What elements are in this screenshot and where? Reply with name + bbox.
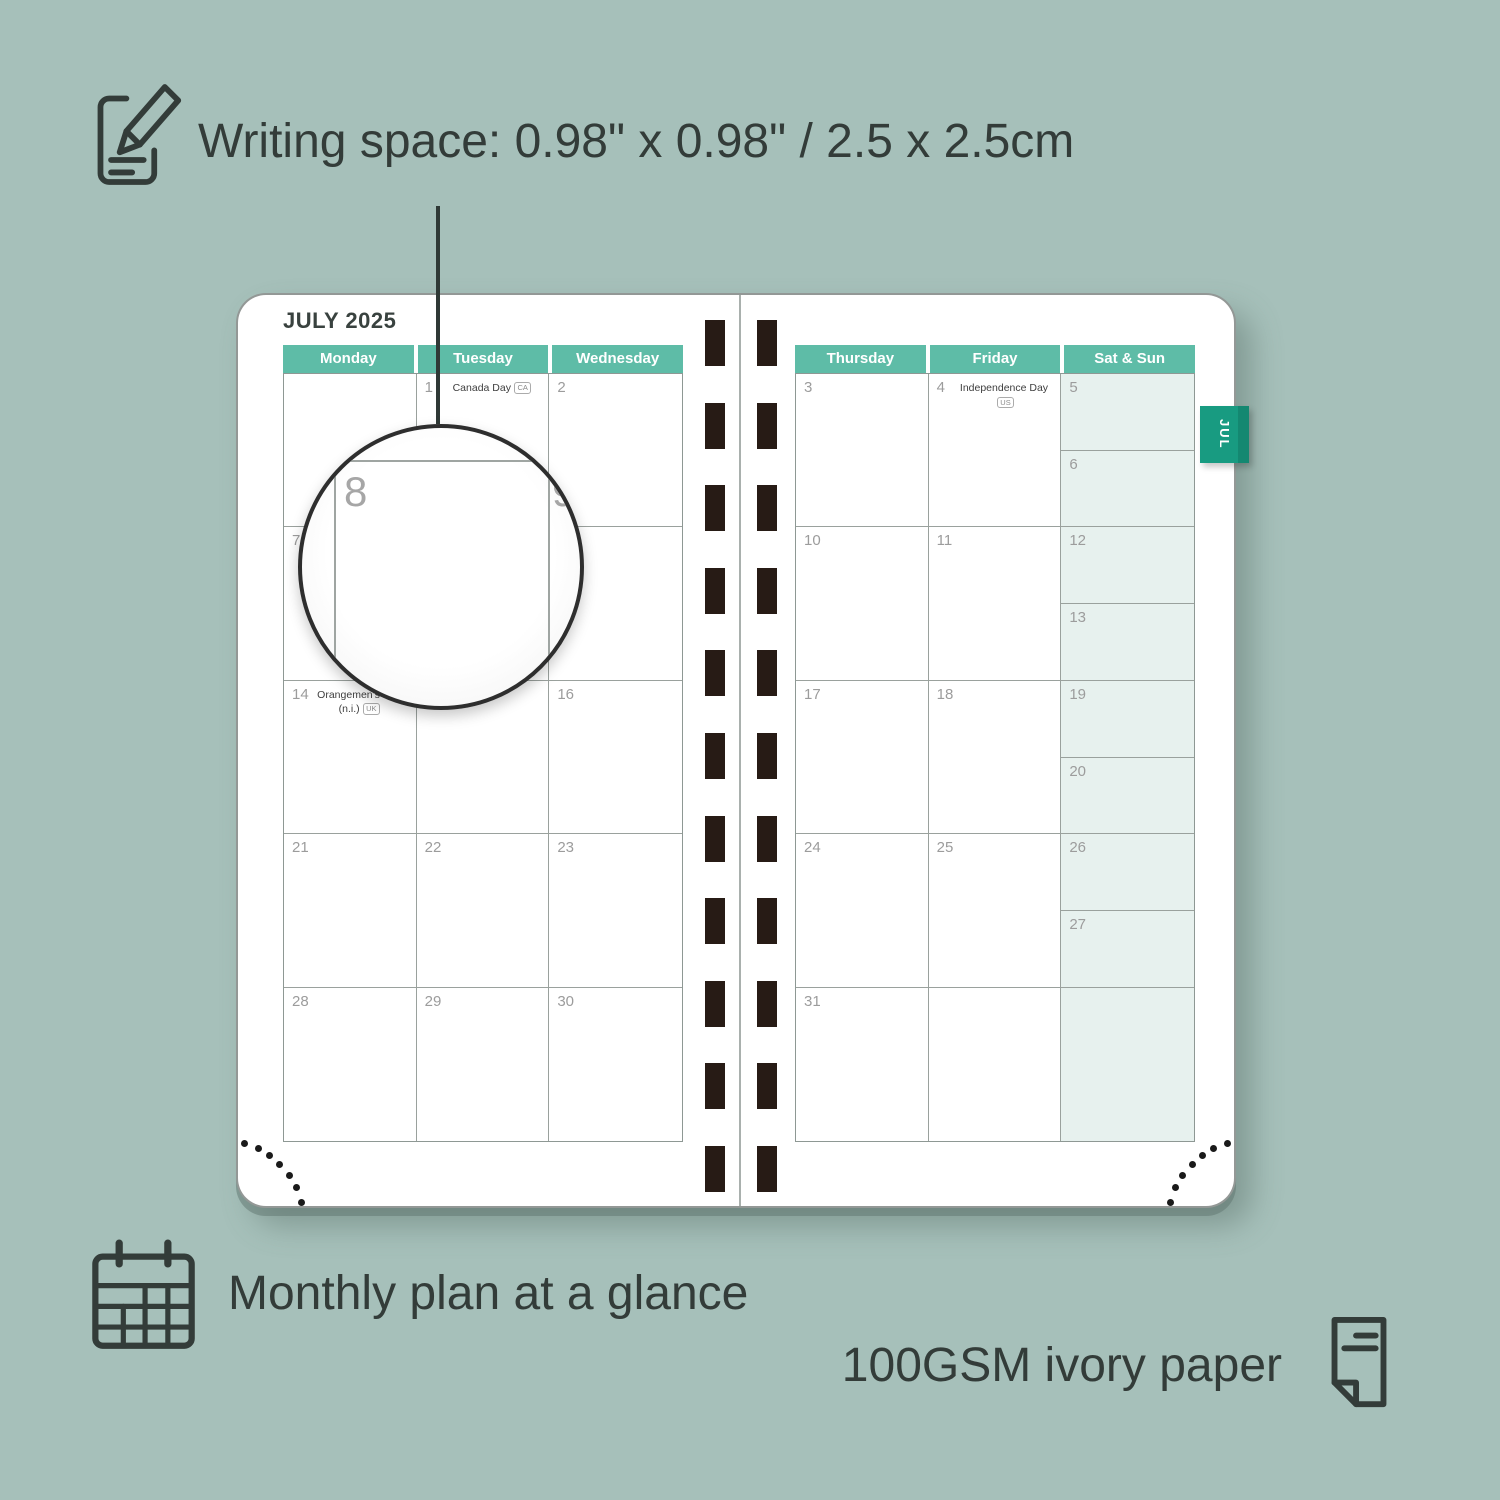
perforation-dot bbox=[276, 1161, 283, 1168]
day-number: 19 bbox=[1069, 686, 1086, 703]
day-header: Monday bbox=[283, 345, 414, 373]
monthly-plan-label: Monthly plan at a glance bbox=[228, 1266, 748, 1321]
weekend-cell: 1920 bbox=[1061, 681, 1194, 834]
day-header: Thursday bbox=[795, 345, 926, 373]
day-number: 21 bbox=[292, 839, 309, 856]
day-number: 13 bbox=[1069, 609, 1086, 626]
day-cell: 14Orangemen's Day (n.i.)UK bbox=[284, 681, 417, 834]
binding-hole bbox=[705, 981, 725, 1027]
perforation-dot bbox=[1189, 1161, 1196, 1168]
day-number: 17 bbox=[804, 686, 821, 703]
day-header: Friday bbox=[930, 345, 1061, 373]
magnified-day-number: 8 bbox=[344, 468, 367, 516]
perforation-dot bbox=[1224, 1140, 1231, 1147]
left-page-day-headers: MondayTuesdayWednesday bbox=[283, 345, 683, 373]
binding-hole bbox=[705, 320, 725, 366]
perforation-dot bbox=[1210, 1145, 1217, 1152]
binding-hole bbox=[757, 485, 777, 531]
binding-hole bbox=[705, 650, 725, 696]
perforation-dot bbox=[255, 1145, 262, 1152]
day-number: 18 bbox=[937, 686, 954, 703]
weekend-subcell: 19 bbox=[1061, 681, 1194, 757]
day-number: 22 bbox=[425, 839, 442, 856]
weekend-subcell: 5 bbox=[1061, 374, 1194, 450]
right-page-grid: 34Independence DayUS56101112131718192024… bbox=[795, 373, 1195, 1142]
magnified-grid-line bbox=[548, 460, 550, 710]
weekend-subcell: 20 bbox=[1061, 757, 1194, 834]
weekend-cell bbox=[1061, 988, 1194, 1141]
day-cell: 28 bbox=[284, 988, 417, 1141]
day-cell: 30 bbox=[549, 988, 682, 1141]
magnified-grid-line bbox=[334, 460, 336, 670]
binding-hole bbox=[757, 733, 777, 779]
day-cell: 17 bbox=[796, 681, 929, 834]
day-number: 4 bbox=[937, 379, 945, 396]
calendar-grid-icon bbox=[86, 1238, 200, 1354]
day-number: 28 bbox=[292, 993, 309, 1010]
day-cell: 24 bbox=[796, 834, 929, 987]
day-number: 30 bbox=[557, 993, 574, 1010]
country-badge: CA bbox=[514, 382, 531, 394]
holiday-label: Canada DayCA bbox=[439, 381, 546, 396]
right-page-day-headers: ThursdayFridaySat & Sun bbox=[795, 345, 1195, 373]
binding-hole bbox=[757, 403, 777, 449]
binding-hole bbox=[705, 1063, 725, 1109]
perforation-dot bbox=[1179, 1172, 1186, 1179]
day-number: 5 bbox=[1069, 379, 1077, 396]
perforation-dot bbox=[286, 1172, 293, 1179]
weekend-cell: 1213 bbox=[1061, 527, 1194, 680]
month-title: JULY 2025 bbox=[283, 308, 396, 334]
day-cell: 21 bbox=[284, 834, 417, 987]
pencil-note-icon bbox=[88, 80, 184, 190]
weekend-cell: 2627 bbox=[1061, 834, 1194, 987]
magnified-grid-line bbox=[302, 460, 580, 462]
day-number: 26 bbox=[1069, 839, 1086, 856]
binding-hole bbox=[705, 485, 725, 531]
day-cell: 31 bbox=[796, 988, 929, 1141]
day-number: 10 bbox=[804, 532, 821, 549]
perforation-dot bbox=[241, 1140, 248, 1147]
day-cell: 22 bbox=[417, 834, 550, 987]
perforation-dot bbox=[298, 1199, 305, 1206]
binding-hole bbox=[705, 898, 725, 944]
binding-hole bbox=[705, 733, 725, 779]
binding-hole bbox=[757, 898, 777, 944]
day-number: 11 bbox=[937, 532, 953, 549]
day-number: 16 bbox=[557, 686, 574, 703]
binding-hole bbox=[705, 568, 725, 614]
perforation-dot bbox=[266, 1152, 273, 1159]
weekend-subcell: 27 bbox=[1061, 910, 1194, 987]
binding-hole bbox=[757, 816, 777, 862]
day-cell: 25 bbox=[929, 834, 1062, 987]
weekend-subcell bbox=[1061, 988, 1194, 1141]
binding-hole bbox=[705, 816, 725, 862]
paper-sheet-icon bbox=[1322, 1316, 1396, 1410]
binding-hole bbox=[705, 1146, 725, 1192]
month-tab: JUL bbox=[1200, 406, 1249, 463]
binding-hole bbox=[705, 403, 725, 449]
day-cell: 29 bbox=[417, 988, 550, 1141]
day-header: Wednesday bbox=[552, 345, 683, 373]
page-seam bbox=[739, 295, 741, 1206]
country-badge: US bbox=[997, 397, 1014, 409]
magnifier-circle: 8 9 bbox=[298, 424, 584, 710]
day-cell: 23 bbox=[549, 834, 682, 987]
day-cell: 4Independence DayUS bbox=[929, 374, 1062, 527]
weekend-subcell: 26 bbox=[1061, 834, 1194, 910]
perforation-dot bbox=[1167, 1199, 1174, 1206]
writing-space-label: Writing space: 0.98" x 0.98" / 2.5 x 2.5… bbox=[198, 114, 1074, 169]
binding-hole bbox=[757, 568, 777, 614]
paper-label: 100GSM ivory paper bbox=[842, 1338, 1282, 1393]
perforation-dot bbox=[1199, 1152, 1206, 1159]
day-number: 29 bbox=[425, 993, 442, 1010]
day-number: 14 bbox=[292, 686, 309, 703]
perforation-dot bbox=[1172, 1184, 1179, 1191]
day-number: 23 bbox=[557, 839, 574, 856]
magnified-day-number: 9 bbox=[552, 468, 575, 516]
day-number: 2 bbox=[557, 379, 565, 396]
product-infographic: Writing space: 0.98" x 0.98" / 2.5 x 2.5… bbox=[0, 0, 1500, 1500]
weekend-cell: 56 bbox=[1061, 374, 1194, 527]
binding-hole bbox=[757, 1146, 777, 1192]
perforation-dot bbox=[293, 1184, 300, 1191]
weekend-subcell: 12 bbox=[1061, 527, 1194, 603]
day-cell: 3 bbox=[796, 374, 929, 527]
binding-hole bbox=[757, 1063, 777, 1109]
day-header: Sat & Sun bbox=[1064, 345, 1195, 373]
day-cell: 11 bbox=[929, 527, 1062, 680]
month-tab-label: JUL bbox=[1200, 406, 1249, 463]
day-cell bbox=[929, 988, 1062, 1141]
day-number: 27 bbox=[1069, 916, 1086, 933]
day-cell: 16 bbox=[549, 681, 682, 834]
holiday-label: Independence DayUS bbox=[951, 381, 1058, 410]
day-number: 6 bbox=[1069, 456, 1077, 473]
day-cell: 10 bbox=[796, 527, 929, 680]
day-number: 20 bbox=[1069, 763, 1086, 780]
country-badge: UK bbox=[363, 703, 380, 715]
day-number: 1 bbox=[425, 379, 433, 396]
day-number: 24 bbox=[804, 839, 821, 856]
planner-spread: JULY 2025 MondayTuesdayWednesday 1Canada… bbox=[236, 293, 1236, 1208]
day-cell: 18 bbox=[929, 681, 1062, 834]
binding-hole bbox=[757, 650, 777, 696]
binding-hole bbox=[757, 320, 777, 366]
weekend-subcell: 13 bbox=[1061, 603, 1194, 680]
day-number: 25 bbox=[937, 839, 954, 856]
binding-hole bbox=[757, 981, 777, 1027]
day-number: 3 bbox=[804, 379, 812, 396]
weekend-subcell: 6 bbox=[1061, 450, 1194, 527]
day-number: 31 bbox=[804, 993, 821, 1010]
callout-line bbox=[436, 206, 440, 424]
day-number: 12 bbox=[1069, 532, 1086, 549]
